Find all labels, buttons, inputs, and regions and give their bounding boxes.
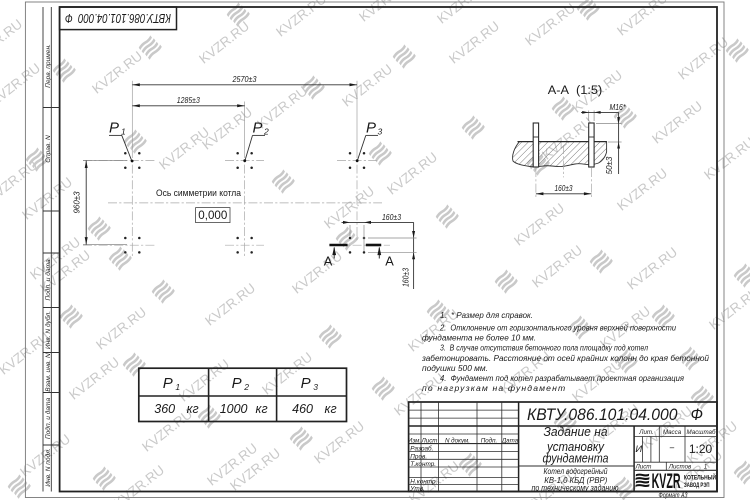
svg-text:KVZR: KVZR [652,470,681,493]
svg-text:460: 460 [292,402,313,416]
svg-text:КВТУ.086.101.04.000 Ф: КВТУ.086.101.04.000 Ф [527,405,703,424]
svg-text:Инв. N дубл.: Инв. N дубл. [44,311,52,349]
svg-text:Лист: Лист [421,437,438,444]
svg-text:Дата: Дата [501,437,519,444]
svg-text:Формат А3: Формат А3 [659,492,688,499]
svg-text:Лист: Лист [635,464,652,471]
svg-text:0,000: 0,000 [198,208,227,222]
svg-text:3. В случае отсутствия бетонн: 3. В случае отсутствия бетонного пола пл… [440,343,648,353]
svg-text:Справ. N: Справ. N [45,135,52,163]
svg-text:160±3: 160±3 [555,184,573,193]
svg-text:по техническому заданию: по техническому заданию [532,483,619,492]
svg-text:фундамента: фундамента [543,450,609,465]
svg-text:по нагрузкам на фундамент: по нагрузкам на фундамент [422,383,566,393]
svg-text:960±3: 960±3 [72,191,81,214]
svg-text:ЗАВОД РЭП: ЗАВОД РЭП [684,483,710,489]
svg-text:1285±3: 1285±3 [177,96,200,105]
svg-text:160±3: 160±3 [402,268,411,287]
svg-text:Ось симметрии котла: Ось симметрии котла [156,188,242,199]
svg-text:Т.контр.: Т.контр. [410,461,436,468]
svg-text:1:20: 1:20 [689,442,713,456]
svg-text:360: 360 [154,402,175,416]
svg-text:2: 2 [243,382,249,392]
svg-text:кг: кг [325,402,337,416]
svg-text:кг: кг [187,402,199,416]
svg-text:2570±3: 2570±3 [232,75,257,84]
svg-text:Изм.: Изм. [408,437,421,444]
svg-text:фундамента не более 10 мм.: фундамента не более 10 мм. [422,332,536,342]
svg-text:4. Фундамент под котел разраб: 4. Фундамент под котел разрабатывает про… [440,373,684,383]
svg-text:160±3: 160±3 [382,213,401,222]
svg-text:M16*: M16* [610,103,627,112]
svg-text:кг: кг [256,402,268,416]
svg-text:Масса: Масса [663,429,682,436]
svg-text:забетонировать. Расстояние от: забетонировать. Расстояние от осей крайн… [421,353,709,363]
svg-text:1. * Размер для справок.: 1. * Размер для справок. [440,310,533,320]
svg-text:А: А [385,254,394,269]
svg-text:И: И [635,444,642,455]
svg-text:Лит.: Лит. [638,429,654,436]
svg-text:Перв. примен.: Перв. примен. [45,44,52,88]
svg-text:N докум.: N докум. [445,437,470,444]
svg-text:P: P [109,120,119,137]
svg-text:P: P [232,375,242,392]
svg-text:1: 1 [704,464,707,471]
svg-text:P: P [301,375,311,392]
svg-text:Масштаб: Масштаб [687,429,716,436]
svg-text:Подп. и дата: Подп. и дата [44,259,52,301]
svg-text:А-А (1:5): А-А (1:5) [548,83,603,97]
svg-text:2. Отклонение от горизонтальн: 2. Отклонение от горизонтального уровня … [439,322,676,332]
svg-text:Инв. N подл.: Инв. N подл. [44,448,52,487]
svg-text:Задание на: Задание на [544,424,608,439]
svg-text:P: P [253,120,263,137]
svg-text:P: P [366,120,376,137]
svg-text:–: – [669,443,675,452]
svg-text:КОТЕЛЬНЫЙ: КОТЕЛЬНЫЙ [684,474,716,482]
svg-text:1000: 1000 [220,402,248,416]
svg-text:Утв.: Утв. [409,486,425,493]
svg-text:подушки 500 мм.: подушки 500 мм. [422,363,488,373]
svg-text:Взам. инв. N: Взам. инв. N [45,353,52,392]
svg-text:3: 3 [378,127,383,137]
svg-text:1: 1 [175,382,180,392]
svg-text:3: 3 [313,382,318,392]
svg-text:Разраб.: Разраб. [410,445,433,453]
svg-text:Подп. и дата: Подп. и дата [44,398,52,440]
svg-text:P: P [163,375,173,392]
svg-text:Н.контр.: Н.контр. [410,479,437,486]
svg-text:Подп.: Подп. [481,437,497,444]
svg-text:50±3: 50±3 [605,156,614,174]
svg-text:КВТУ.086.101.04.000 Ф: КВТУ.086.101.04.000 Ф [65,11,171,25]
svg-text:А: А [324,254,333,269]
svg-text:Пров.: Пров. [410,453,427,460]
